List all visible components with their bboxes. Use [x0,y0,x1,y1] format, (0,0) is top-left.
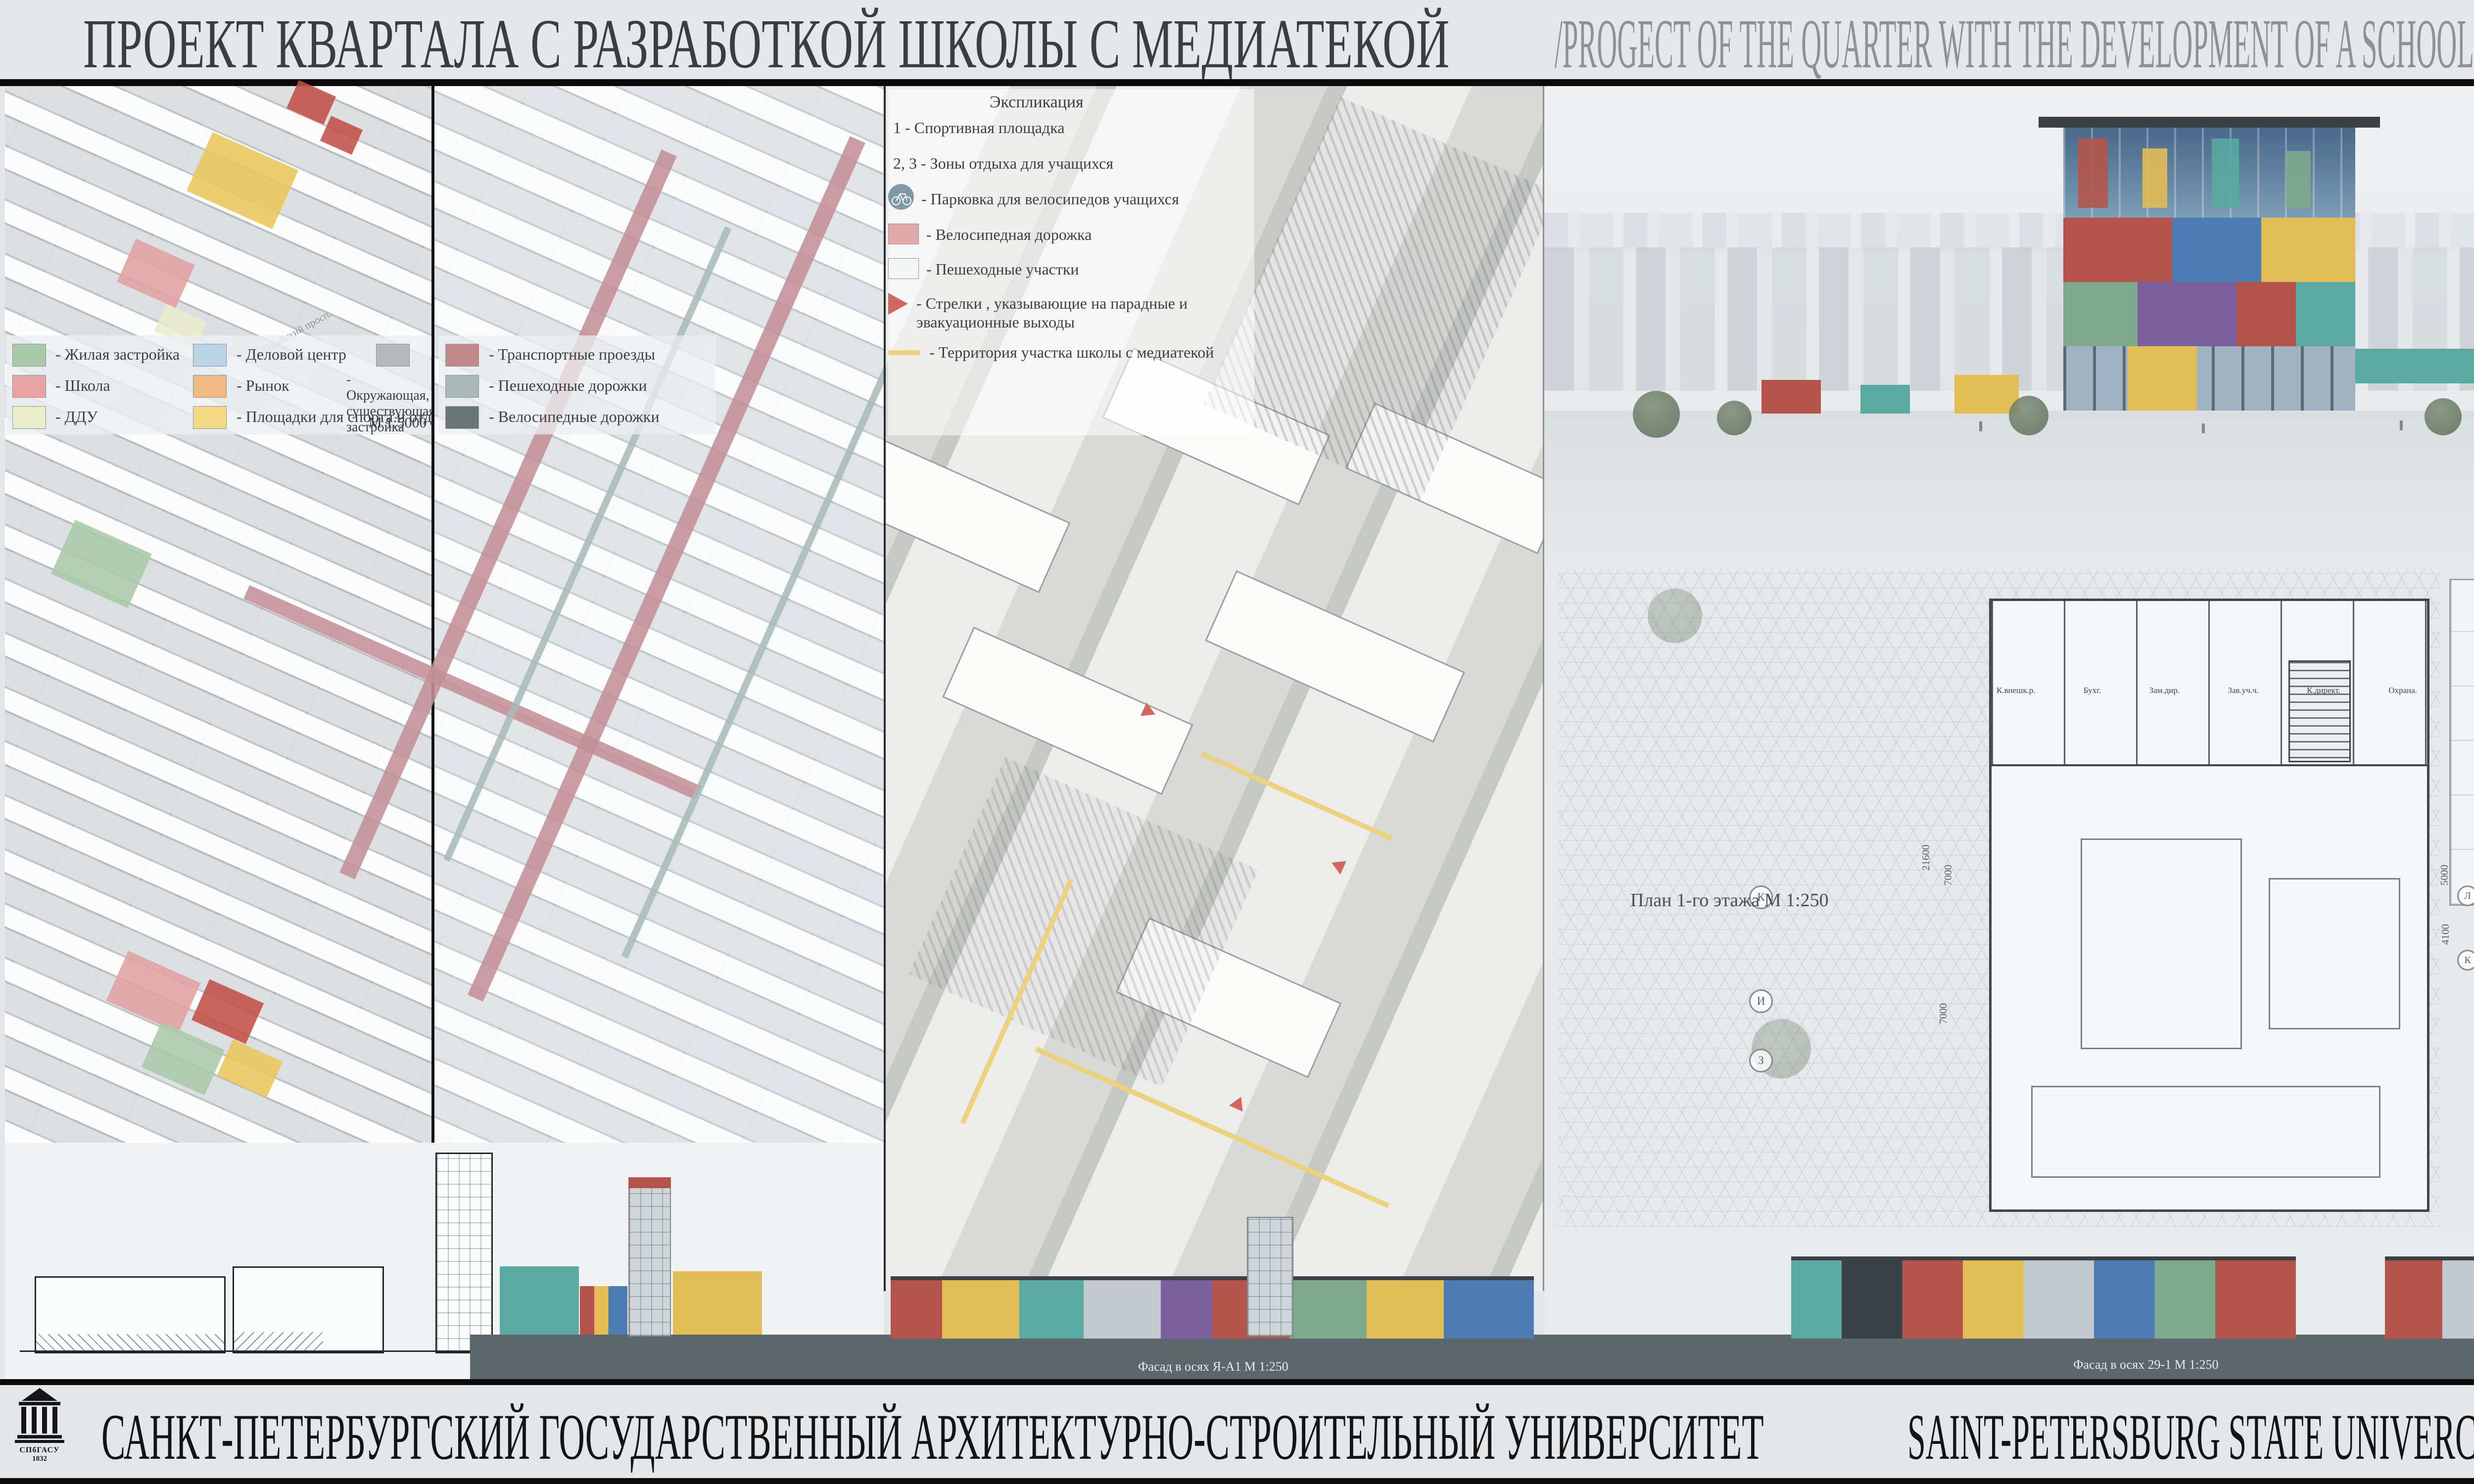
explication-item: - Пешеходные участки [926,260,1079,278]
kiosk-block [1860,385,1910,414]
wing-block [2355,349,2474,383]
dimension-text: 21600 [1920,845,1932,871]
footer-university-en: SAINT-PETERSBURG STATE UNIVERCITY OF ARC… [1907,1399,2474,1475]
explication-item: - Велосипедная дорожка [926,226,1092,244]
elevation-tower-cap [628,1177,671,1188]
footer-divider-bottom [0,1478,2474,1484]
elevation-strip [2385,1256,2474,1339]
legend-swatch [376,344,410,367]
room-label: Бухг. [2084,686,2101,696]
explication-item: - Стрелки , указывающие на парадные и эв… [916,294,1223,331]
school-panel [2212,139,2239,208]
plan1-room-labels: К.внешк.р. Бухг. Зам.дир. Зав.уч.ч. К.ди… [1997,686,2417,696]
header-divider [0,79,2474,86]
arrow-icon [888,293,908,315]
explication-item: 1 - Спортивная площадка [893,119,1064,137]
person-silhouette [2202,423,2205,433]
hatch-zone [909,757,1259,1087]
section-ground-line [20,1350,490,1352]
elevation-block [673,1271,762,1335]
elevation-strip [1791,1256,2296,1339]
elevation-strip [891,1276,1534,1339]
plan1-rooms-strip [1992,601,2427,766]
dimension-text: 5000 [2438,865,2451,885]
grid-bubble: Л [2457,885,2474,906]
legend-swatch [12,375,46,398]
legend-swatch [888,224,919,244]
tree [1648,589,1702,643]
school-band [2236,282,2296,346]
plan1-room [2031,1086,2380,1178]
logo-base [17,1435,62,1438]
explication-title: Экспликация [990,93,1084,112]
explication-item: - Парковка для велосипедов учащихся [921,190,1179,208]
grid-bubble: К [2457,950,2474,971]
legend-swatch [193,344,227,367]
section-drawing [233,1266,384,1353]
room-label: К.внешк.р. [1997,686,2036,696]
bike-icon [888,184,914,210]
building-outline [1205,570,1465,742]
school-band [2063,218,2172,282]
explication-item: 2, 3 - Зоны отдыха для учащихся [893,154,1113,173]
header-title-en: /PROGECT OF THE QUARTER WITH THE DEVELOP… [1555,3,2474,84]
elevation-tower [1247,1217,1293,1337]
elevation-block [500,1266,579,1335]
logo-pediment-icon [22,1388,57,1401]
dimension-text: 7000 [1942,865,1954,885]
school-band [2063,282,2138,346]
plan1-room [2269,878,2400,1029]
room-label: Зам.дир. [2149,686,2180,696]
exit-arrow-icon [1229,1094,1248,1112]
plan1-room [2081,838,2242,1049]
room-label: Зав.уч.ч. [2228,686,2259,696]
legend-label: - Школа [55,376,110,395]
person-silhouette [2400,420,2403,430]
legend-swatch [193,375,227,398]
school-roof [2039,117,2380,128]
school-ground-floor [2063,346,2355,411]
dimension-text: 4100 [2439,924,2452,945]
elevation-block [580,1286,627,1335]
legend-label: - Велосипедные дорожки [489,408,660,426]
school-band [2296,282,2355,346]
person-silhouette [1979,421,1982,431]
school-band [2261,218,2355,282]
room-label: Охрана. [2388,686,2417,696]
grid-bubble: И [1749,989,1773,1013]
legend-label: - Пешеходные дорожки [489,376,647,395]
logo-columns [21,1407,58,1434]
elevation-label: Фасад в осях Я-А1 М 1:250 [1138,1359,1288,1374]
school-panel [2078,139,2108,208]
plan2-drawing [2449,579,2474,906]
logo-architrave [19,1402,60,1405]
tower-elevation-drawing [435,1153,493,1353]
territory-line-icon [888,350,920,355]
elevations-ground-band [470,1335,2474,1379]
tree [1717,401,1752,435]
grid-bubble: З [1749,1049,1773,1072]
footer-divider-top [0,1379,2474,1385]
render-ground [1544,411,2474,574]
legend-label: - Жилая застройка [55,345,180,364]
school-ground-block [2128,346,2197,411]
logo-base [15,1440,64,1443]
kiosk-block [1954,375,2019,414]
presentation-board: ПРОЕКТ КВАРТАЛА С РАЗРАБОТКОЙ ШКОЛЫ С МЕ… [0,0,2474,1484]
legend-label: - ДДУ [55,408,97,426]
school-territory-line [1200,751,1392,840]
school-panel [2286,151,2311,208]
tree [2425,398,2462,435]
legend-swatch [888,258,919,279]
legend-swatch [12,406,46,429]
school-panel [2142,148,2167,208]
building-outline [886,433,1070,593]
section-drawing [35,1276,226,1353]
map-scale-label: М 1:5000 [369,415,427,431]
legend-swatch [193,406,227,429]
school-band [2172,218,2261,282]
tree [2009,396,2048,435]
elevation-label: Фасад в осях 29-1 М 1:250 [2073,1357,2219,1372]
school-band [2138,282,2236,346]
legend-label: - Деловой центр [237,345,346,364]
plan1-stair [2288,660,2351,762]
tree [1633,391,1680,438]
exit-arrow-icon [1329,856,1346,875]
legend-swatch [445,375,479,398]
legend-swatch [445,406,479,429]
legend-label: - Рынок [237,376,289,395]
logo-acronym: СПбГАСУ [14,1446,65,1455]
legend-swatch [12,344,46,367]
logo-year: 1832 [14,1455,65,1463]
university-logo: СПбГАСУ 1832 [14,1388,65,1475]
room-label: К.директ. [2307,686,2340,696]
kiosk-block [1761,380,1821,414]
elevation-tower [628,1177,671,1337]
dimension-text: 7000 [1937,1003,1950,1024]
legend-swatch [445,344,479,367]
explication-item: - Территория участка школы с медиатекой [929,343,1214,362]
legend-label: - Транспортные проезды [489,345,655,364]
school-territory-line [1035,1047,1390,1208]
plan1-label: План 1-го этажа М 1:250 [1630,889,1829,911]
